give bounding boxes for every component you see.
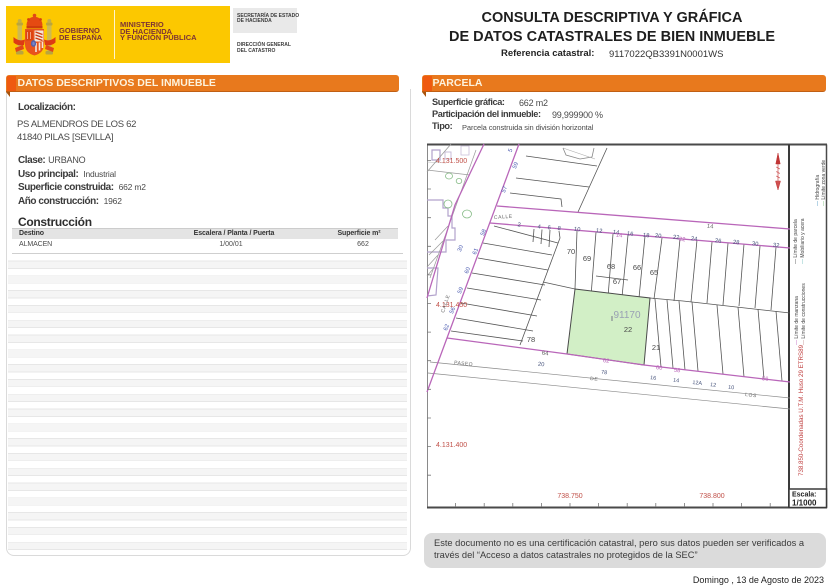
svg-text:58: 58 xyxy=(674,368,681,375)
svg-text:DE: DE xyxy=(590,376,599,383)
svg-text:91170: 91170 xyxy=(613,310,641,321)
svg-text:78: 78 xyxy=(601,370,608,377)
svg-text:20: 20 xyxy=(655,233,662,240)
svg-text:28: 28 xyxy=(733,240,740,247)
svg-text:16: 16 xyxy=(627,231,634,238)
svg-text:— Límite de construcciones: — Límite de construcciones xyxy=(801,283,807,345)
svg-text:Escala:: Escala: xyxy=(792,492,817,499)
svg-text:20: 20 xyxy=(538,362,545,369)
svg-text:66: 66 xyxy=(633,263,641,272)
svg-text:— Límite zona verde: — Límite zona verde xyxy=(821,160,827,206)
svg-text:LOS: LOS xyxy=(745,392,757,399)
svg-text:12A: 12A xyxy=(692,380,703,387)
svg-text:30: 30 xyxy=(752,241,759,248)
svg-text:68: 68 xyxy=(607,262,615,271)
svg-text:60: 60 xyxy=(656,365,663,372)
svg-text:— Mobiliario y acera: — Mobiliario y acera xyxy=(800,218,806,264)
svg-text:— Límite de parcela: — Límite de parcela xyxy=(793,219,799,264)
svg-text:69: 69 xyxy=(583,254,591,263)
svg-text:4.131.500: 4.131.500 xyxy=(436,158,467,165)
svg-text:56: 56 xyxy=(762,376,769,383)
svg-text:10: 10 xyxy=(728,385,735,392)
svg-text:14: 14 xyxy=(673,378,680,385)
svg-text:— Límite de manzana: — Límite de manzana xyxy=(794,296,800,345)
svg-text:22: 22 xyxy=(624,325,632,334)
svg-text:16: 16 xyxy=(650,375,657,382)
svg-text:18: 18 xyxy=(643,233,650,240)
svg-text:78: 78 xyxy=(527,335,535,344)
svg-text:22: 22 xyxy=(679,237,686,244)
svg-text:12: 12 xyxy=(596,228,603,235)
svg-text:738.750: 738.750 xyxy=(557,493,582,500)
svg-text:67: 67 xyxy=(613,277,621,286)
svg-text:12: 12 xyxy=(710,382,717,389)
svg-text:62: 62 xyxy=(603,358,610,365)
svg-text:21: 21 xyxy=(652,343,660,352)
svg-text:4.131.400: 4.131.400 xyxy=(436,442,467,449)
svg-text:10: 10 xyxy=(574,227,581,234)
svg-text:26: 26 xyxy=(715,238,722,245)
svg-text:1/1000: 1/1000 xyxy=(792,499,817,508)
svg-text:65: 65 xyxy=(650,268,658,277)
svg-text:70: 70 xyxy=(567,247,575,256)
svg-text:32: 32 xyxy=(773,243,780,250)
svg-text:738.850-Coordenadas U.T.M. Hus: 738.850-Coordenadas U.T.M. Huso 29 ETRS8… xyxy=(798,344,805,476)
svg-text:738.800: 738.800 xyxy=(699,493,724,500)
